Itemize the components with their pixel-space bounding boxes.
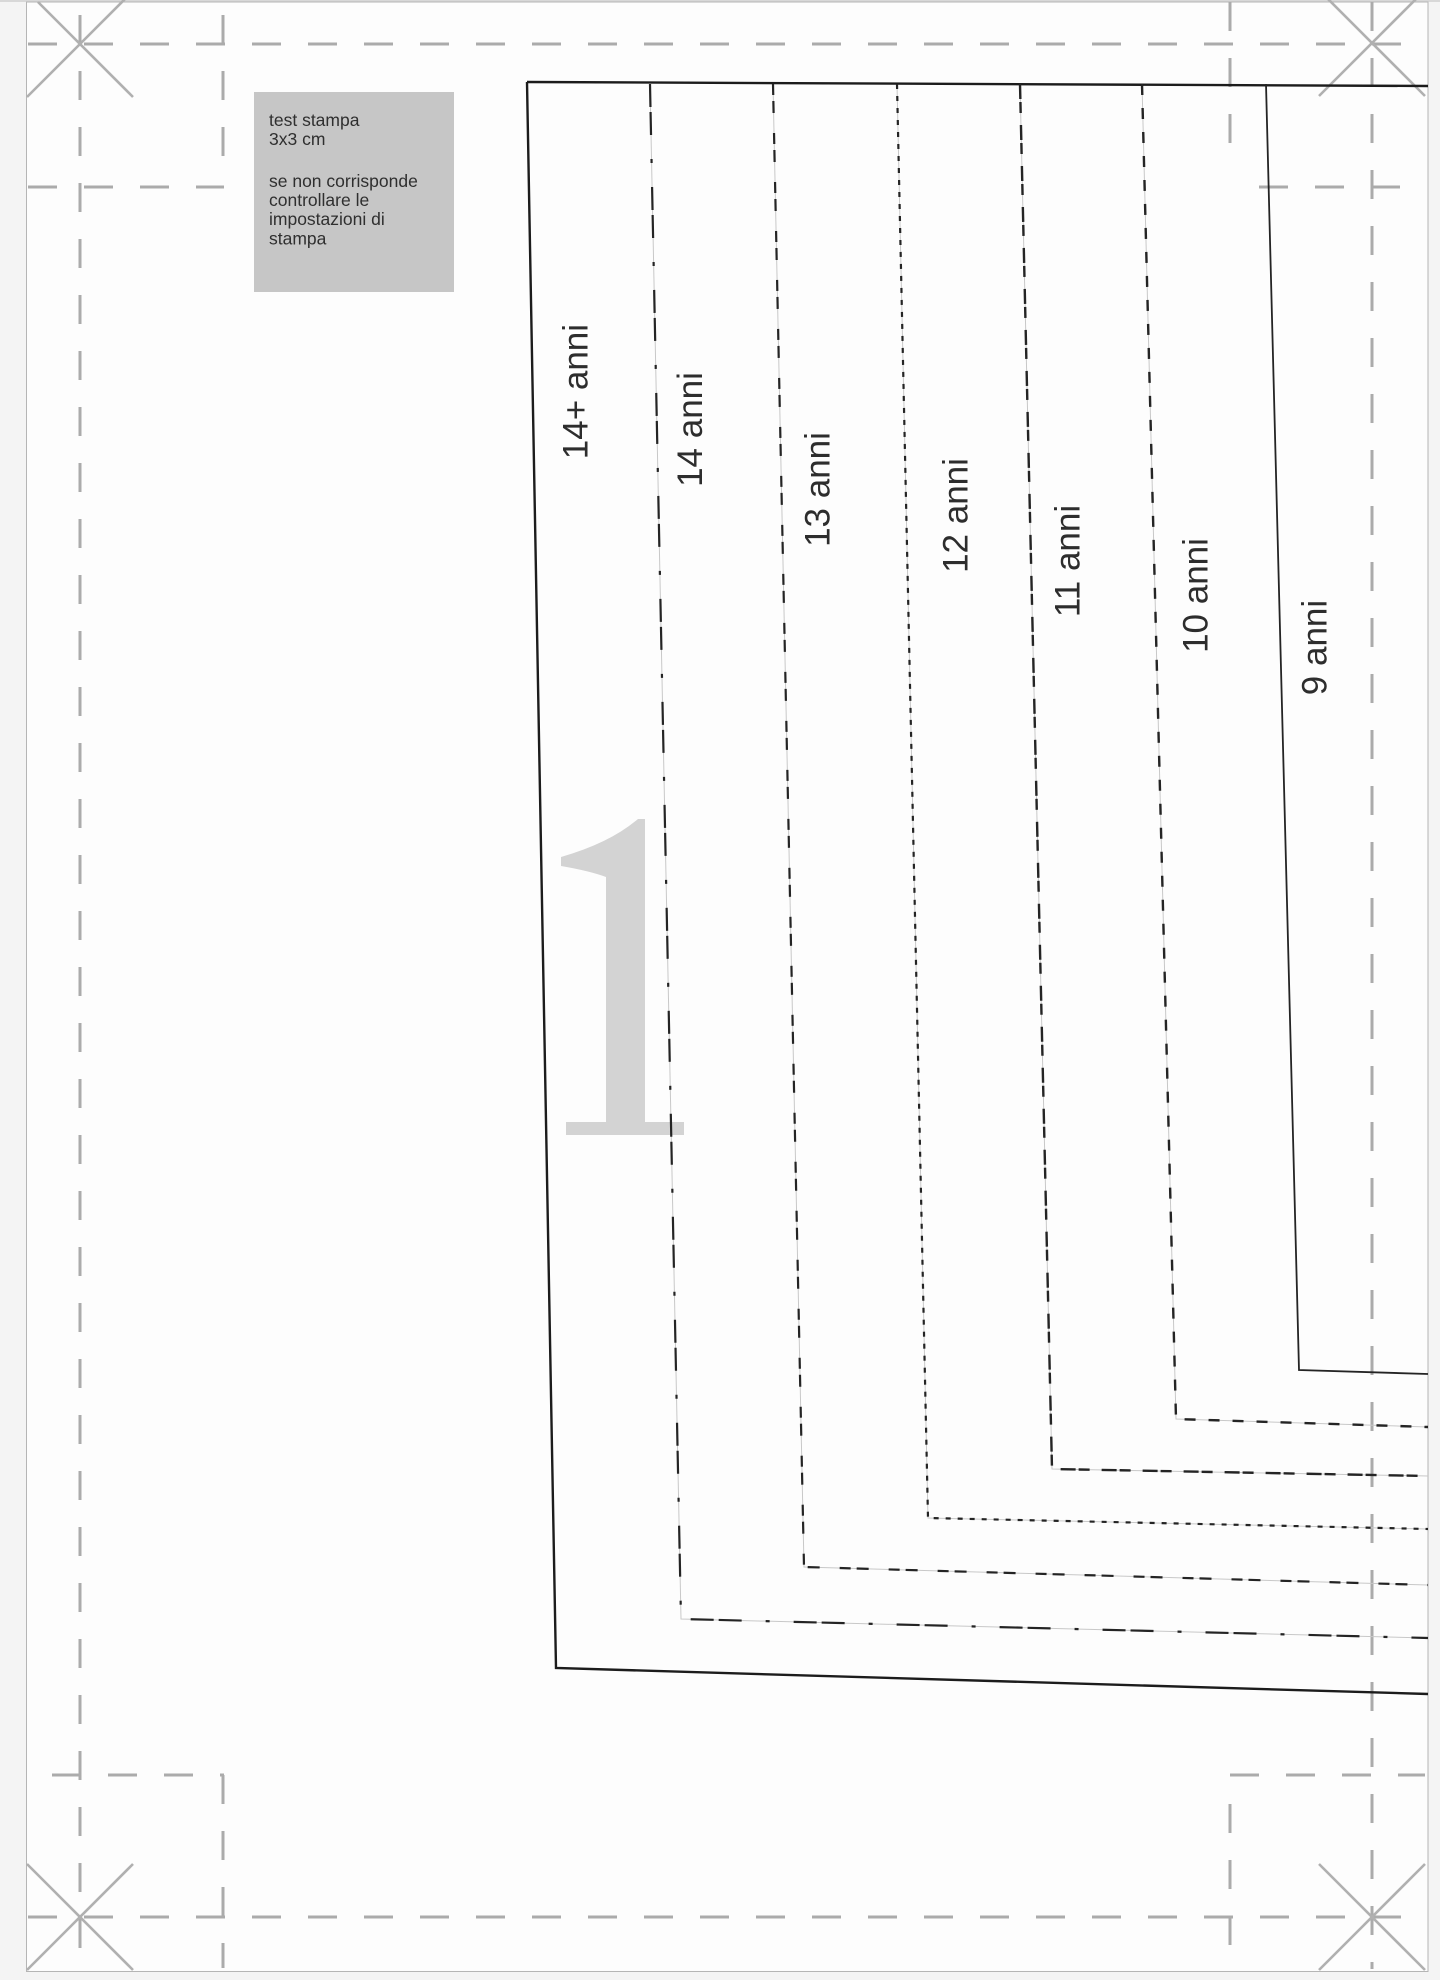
svg-text:3x3 cm: 3x3 cm xyxy=(269,129,325,149)
svg-text:14+ anni: 14+ anni xyxy=(557,324,596,459)
svg-text:controllare le: controllare le xyxy=(269,190,369,210)
svg-text:11 anni: 11 anni xyxy=(1049,505,1088,617)
svg-text:test stampa: test stampa xyxy=(269,110,360,130)
svg-text:14 anni: 14 anni xyxy=(671,372,710,487)
svg-text:13 anni: 13 anni xyxy=(799,432,838,547)
svg-text:10 anni: 10 anni xyxy=(1177,538,1216,653)
svg-text:se non corrisponde: se non corrisponde xyxy=(269,171,418,191)
svg-text:impostazioni di: impostazioni di xyxy=(269,209,385,229)
svg-text:12 anni: 12 anni xyxy=(937,458,976,573)
svg-text:9 anni: 9 anni xyxy=(1296,600,1335,695)
svg-text:stampa: stampa xyxy=(269,228,327,248)
